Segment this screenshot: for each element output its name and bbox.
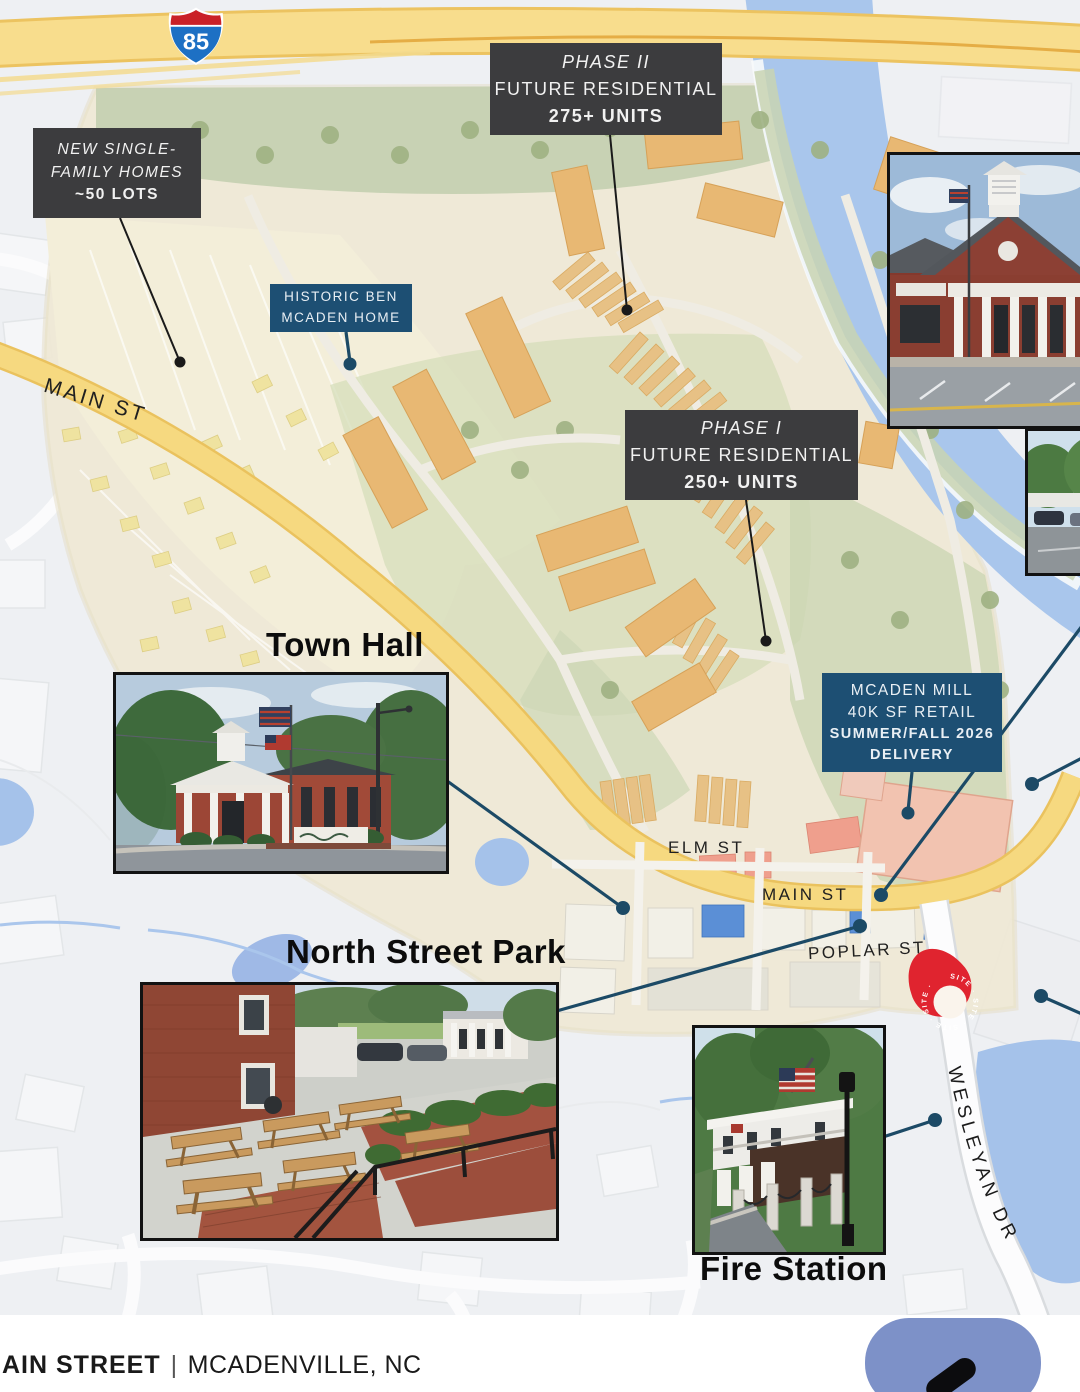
callout-line: FAMILY HOMES: [33, 162, 201, 184]
photo-retail-strip: [1025, 428, 1080, 576]
label-fire-station: Fire Station: [700, 1250, 888, 1288]
callout-line: HISTORIC BEN: [270, 287, 412, 308]
photo-north-street-park: [140, 982, 559, 1241]
photo-fire-station: [692, 1025, 886, 1255]
shield-number: 85: [183, 29, 209, 55]
callout-line: DELIVERY: [822, 745, 1002, 766]
callout-line: NEW SINGLE-: [33, 139, 201, 161]
pen-icon: [922, 1354, 980, 1392]
callout-line: FUTURE RESIDENTIAL: [625, 442, 858, 469]
footer-separator: |: [161, 1351, 188, 1379]
callout-line: ~50 LOTS: [33, 184, 201, 206]
street-label-elm-st: ELM ST: [668, 838, 744, 858]
callout-phase-2: PHASE II FUTURE RESIDENTIAL 275+ UNITS: [490, 43, 722, 135]
callout-line: 275+ UNITS: [490, 103, 722, 130]
photo-town-hall: [113, 672, 449, 874]
callout-line: PHASE I: [625, 415, 858, 442]
footer-text: AIN STREET|MCADENVILLE, NC: [2, 1351, 422, 1380]
callout-line: MCADEN MILL: [822, 680, 1002, 702]
label-north-street-park: North Street Park: [286, 933, 566, 971]
callout-line: MCADEN HOME: [270, 308, 412, 329]
callout-mcaden-mill: MCADEN MILL 40K SF RETAIL SUMMER/FALL 20…: [822, 673, 1002, 772]
photo-post-office: [887, 152, 1080, 429]
label-town-hall: Town Hall: [266, 626, 424, 664]
callout-line: 250+ UNITS: [625, 469, 858, 496]
footer-city: MCADENVILLE, NC: [188, 1351, 422, 1379]
callout-phase-1: PHASE I FUTURE RESIDENTIAL 250+ UNITS: [625, 410, 858, 500]
callout-historic-ben-mcaden-home: HISTORIC BEN MCADEN HOME: [270, 284, 412, 332]
callout-new-single-family-homes: NEW SINGLE- FAMILY HOMES ~50 LOTS: [33, 128, 201, 218]
callout-line: 40K SF RETAIL: [822, 702, 1002, 724]
callout-line: FUTURE RESIDENTIAL: [490, 76, 722, 103]
callout-line: PHASE II: [490, 49, 722, 76]
callout-line: SUMMER/FALL 2026: [822, 724, 1002, 745]
mcadenville-development-map: 85 WESLEYAN DR SITE · SITE · SITE · SITE…: [0, 0, 1080, 1392]
footer-street-name: AIN STREET: [2, 1351, 161, 1379]
app-button[interactable]: [865, 1318, 1041, 1392]
street-label-main-st-lower: MAIN ST: [762, 885, 848, 905]
